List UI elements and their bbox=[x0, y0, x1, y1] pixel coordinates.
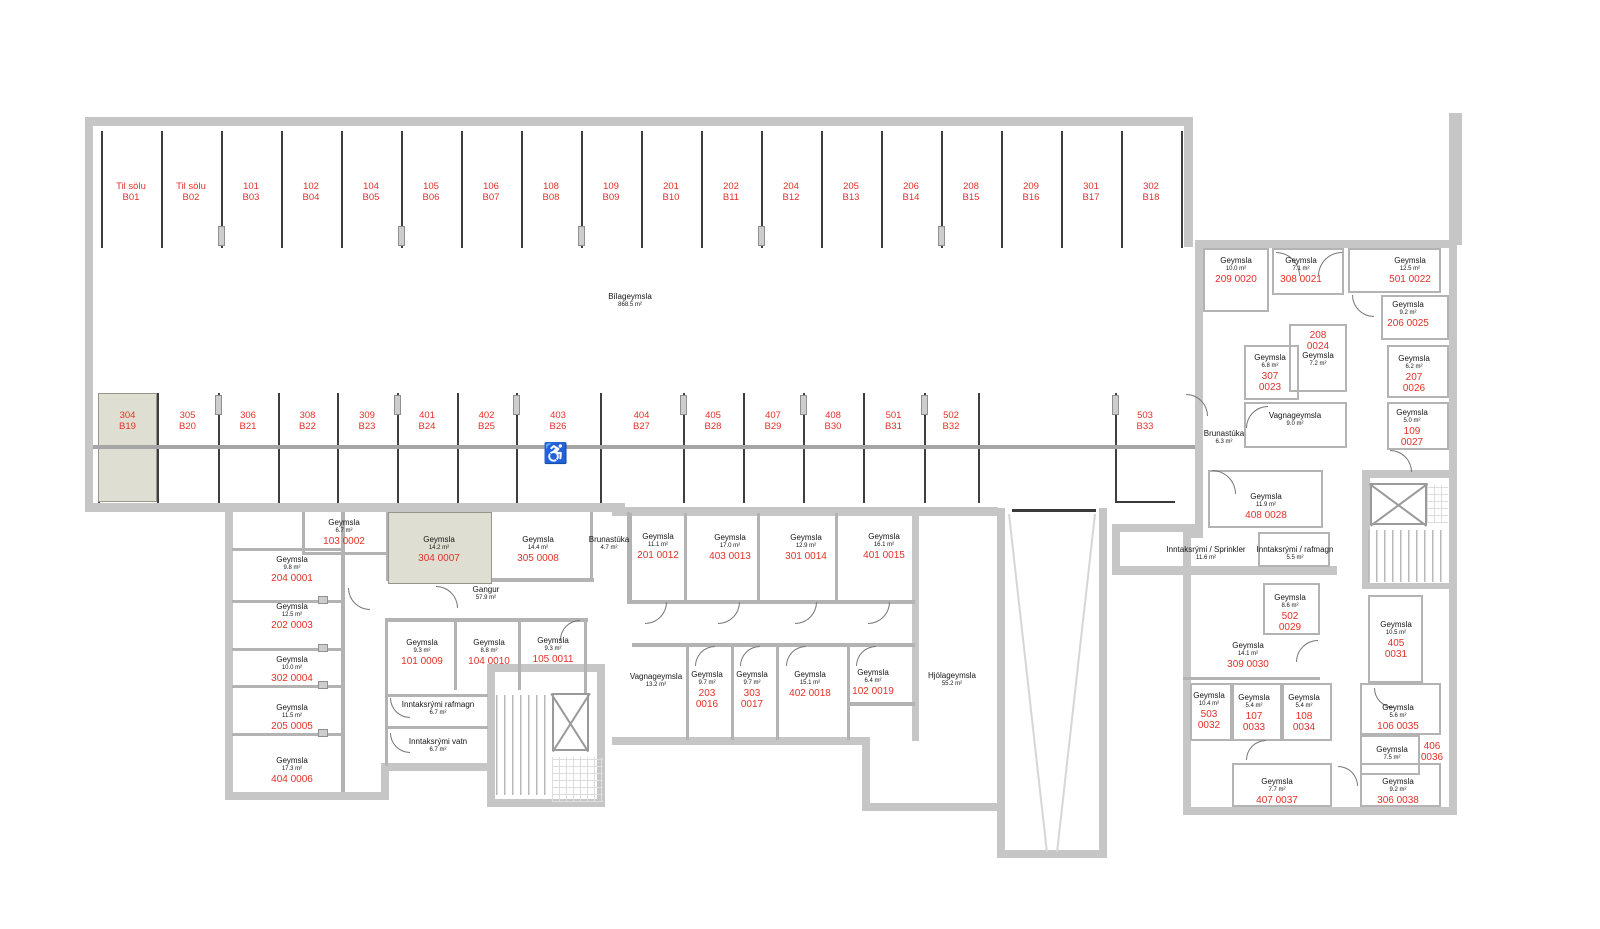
spot-number: 408 bbox=[825, 410, 841, 421]
room-name: Geymsla bbox=[1352, 409, 1472, 418]
wall bbox=[85, 117, 93, 512]
spot-number: 201 bbox=[663, 181, 679, 192]
unit-number: 0031 bbox=[1336, 649, 1456, 660]
partition-wall bbox=[388, 726, 488, 729]
spot-id: B08 bbox=[543, 192, 560, 203]
landing-tiles bbox=[552, 757, 603, 802]
wall bbox=[612, 507, 998, 516]
unit-number: 308 0021 bbox=[1241, 274, 1361, 285]
room-area: 9.2 m² bbox=[1338, 787, 1458, 793]
spot-number: 407 bbox=[765, 410, 781, 421]
spot-id: B31 bbox=[885, 421, 902, 432]
wall bbox=[85, 503, 625, 512]
parking-spot-label: 404B27 bbox=[606, 411, 678, 433]
room-name: Geymsla bbox=[1206, 493, 1326, 502]
room-name: Geymsla bbox=[1338, 778, 1458, 787]
room-area: 14.1 m² bbox=[1188, 651, 1308, 657]
room-name: Geymsla bbox=[1350, 257, 1470, 266]
spot-id: B23 bbox=[359, 421, 376, 432]
spot-id: B24 bbox=[419, 421, 436, 432]
spot-number: 401 bbox=[419, 410, 435, 421]
room-vagnageymsla: Vagnageymsla9.0 m² bbox=[1235, 412, 1355, 429]
spot-number: 309 bbox=[359, 410, 375, 421]
wall bbox=[381, 763, 389, 800]
spot-id: B18 bbox=[1143, 192, 1160, 203]
room-name: Geymsla bbox=[493, 637, 613, 646]
door-arc bbox=[740, 646, 760, 666]
room-area: 9.3 m² bbox=[493, 646, 613, 652]
room-inntaksr-mi-rafmagn: Inntaksrými rafmagn6.7 m² bbox=[378, 701, 498, 718]
spot-number: 106 bbox=[483, 181, 499, 192]
drive-aisle-line bbox=[93, 445, 1195, 449]
unit-number: 302 0004 bbox=[232, 673, 352, 684]
room-area: 9.0 m² bbox=[1235, 421, 1355, 427]
room-206-0025[interactable]: Geymsla9.2 m²206 0025 bbox=[1348, 301, 1468, 329]
wall bbox=[381, 763, 491, 771]
partition-wall bbox=[1183, 677, 1320, 680]
room-area: 5.5 m² bbox=[1235, 555, 1355, 561]
room-area: 55.2 m² bbox=[892, 681, 1012, 687]
garage-label: Bílageymsla868.5 m² bbox=[570, 293, 690, 310]
room-105-0011[interactable]: Geymsla9.3 m²105 0011 bbox=[493, 637, 613, 665]
room-area: 6.3 m² bbox=[1164, 439, 1284, 445]
spot-id: B14 bbox=[903, 192, 920, 203]
spot-number: Til sölu bbox=[116, 181, 146, 192]
stairs bbox=[1368, 530, 1448, 582]
room-name: Geymsla bbox=[232, 556, 352, 565]
room-area: 5.6 m² bbox=[1338, 713, 1458, 719]
wall bbox=[487, 664, 495, 807]
partition-wall bbox=[388, 694, 488, 697]
spot-id: B20 bbox=[179, 421, 196, 432]
room-307-0023[interactable]: Geymsla6.8 m²3070023 bbox=[1210, 354, 1330, 393]
room-brunast-ka: Brunastúka6.3 m² bbox=[1164, 430, 1284, 447]
unit-number: 306 0038 bbox=[1338, 795, 1458, 806]
room-405-0031[interactable]: Geymsla10.5 m²4050031 bbox=[1336, 621, 1456, 660]
spot-id: B17 bbox=[1083, 192, 1100, 203]
unit-number: 408 0028 bbox=[1206, 510, 1326, 521]
door-jamb bbox=[318, 644, 328, 652]
room-name: Geymsla bbox=[1217, 778, 1337, 787]
room-501-0022[interactable]: Geymsla12.5 m²501 0022 bbox=[1350, 257, 1470, 285]
spot-id: B10 bbox=[663, 192, 680, 203]
room-area: 11.9 m² bbox=[1206, 502, 1326, 508]
wall bbox=[1112, 566, 1337, 575]
room-106-0035[interactable]: Geymsla5.6 m²106 0035 bbox=[1338, 704, 1458, 732]
room-area: 7.1 m² bbox=[1241, 266, 1361, 272]
wall bbox=[862, 737, 870, 811]
room-name: Geymsla bbox=[232, 603, 352, 612]
ramp-edge bbox=[1057, 514, 1096, 852]
landing-tiles bbox=[1427, 485, 1448, 523]
room-205-0005[interactable]: Geymsla11.5 m²205 0005 bbox=[232, 704, 352, 732]
room-hj-lageymsla: Hjólageymsla55.2 m² bbox=[892, 672, 1012, 689]
unit-number: 406 bbox=[1392, 741, 1472, 752]
spot-number: 104 bbox=[363, 181, 379, 192]
unit-number: 307 bbox=[1210, 371, 1330, 382]
room-name: Geymsla bbox=[824, 533, 944, 542]
spot-number: 209 bbox=[1023, 181, 1039, 192]
room-area: 12.5 m² bbox=[1350, 266, 1470, 272]
door-arc bbox=[695, 646, 715, 666]
room-name: Gangur bbox=[426, 586, 546, 595]
spot-id: B01 bbox=[123, 192, 140, 203]
room-name: Geymsla bbox=[1354, 355, 1474, 364]
stairs bbox=[496, 695, 546, 795]
spot-number: 308 bbox=[300, 410, 316, 421]
spot-number: 204 bbox=[783, 181, 799, 192]
spot-id: B25 bbox=[478, 421, 495, 432]
wall bbox=[225, 792, 389, 800]
room-306-0038[interactable]: Geymsla9.2 m²306 0038 bbox=[1338, 778, 1458, 806]
wall bbox=[1195, 240, 1457, 248]
room-name: Inntaksrými rafmagn bbox=[378, 701, 498, 710]
room-gangur: Gangur57.9 m² bbox=[426, 586, 546, 603]
spot-id: B12 bbox=[783, 192, 800, 203]
room-407-0037[interactable]: Geymsla7.7 m²407 0037 bbox=[1217, 778, 1337, 806]
room-name: Hjólageymsla bbox=[892, 672, 1012, 681]
ramp-top-line bbox=[1012, 509, 1096, 512]
door-arc bbox=[1186, 394, 1208, 416]
room-name: Inntaksrými vatn bbox=[378, 738, 498, 747]
spot-id: B05 bbox=[363, 192, 380, 203]
spot-number: 101 bbox=[243, 181, 259, 192]
unit-number: 109 bbox=[1352, 426, 1472, 437]
spot-id: B04 bbox=[303, 192, 320, 203]
parking-spot-label: 502B32 bbox=[915, 411, 987, 433]
spot-number: 304 bbox=[120, 410, 136, 421]
unit-number: 202 0003 bbox=[232, 620, 352, 631]
room-area: 57.9 m² bbox=[426, 595, 546, 601]
room-309-0030[interactable]: Geymsla14.1 m²309 0030 bbox=[1188, 642, 1308, 670]
unit-number: 206 0025 bbox=[1348, 318, 1468, 329]
spot-id: B32 bbox=[943, 421, 960, 432]
room-401-0015[interactable]: Geymsla16.1 m²401 0015 bbox=[824, 533, 944, 561]
spot-id: B30 bbox=[825, 421, 842, 432]
spot-id: B07 bbox=[483, 192, 500, 203]
unit-number: 0023 bbox=[1210, 382, 1330, 393]
room-name: Inntaksrými / rafmagn bbox=[1235, 546, 1355, 555]
spot-number: 402 bbox=[479, 410, 495, 421]
ramp-edge bbox=[1009, 514, 1048, 852]
unit-number: 404 0006 bbox=[232, 774, 352, 785]
spot-id: B22 bbox=[299, 421, 316, 432]
room-308-0021[interactable]: Geymsla7.1 m²308 0021 bbox=[1241, 257, 1361, 285]
spot-number: 305 bbox=[180, 410, 196, 421]
room-area: 17.3 m² bbox=[232, 766, 352, 772]
door-arc bbox=[786, 646, 806, 666]
unit-number: 0036 bbox=[1392, 752, 1472, 763]
spot-id: B06 bbox=[423, 192, 440, 203]
spot-number: 206 bbox=[903, 181, 919, 192]
unit-number: 405 bbox=[1336, 638, 1456, 649]
room-109-0027[interactable]: Geymsla5.0 m²1090027 bbox=[1352, 409, 1472, 448]
unit-number: 205 0005 bbox=[232, 721, 352, 732]
unit-number: 105 0011 bbox=[493, 654, 613, 665]
room-name: Geymsla bbox=[232, 757, 352, 766]
spot-id: B09 bbox=[603, 192, 620, 203]
room-name: Geymsla bbox=[1230, 594, 1350, 603]
unit-number: 501 0022 bbox=[1350, 274, 1470, 285]
door-arc bbox=[795, 602, 817, 624]
wall bbox=[868, 803, 1005, 811]
room-207-0026[interactable]: Geymsla6.2 m²2070026 bbox=[1354, 355, 1474, 394]
wall bbox=[1362, 583, 1450, 589]
room-name: Geymsla bbox=[1188, 642, 1308, 651]
room-204-0001[interactable]: Geymsla9.8 m²204 0001 bbox=[232, 556, 352, 584]
parking-spot-label: 403B26 bbox=[522, 411, 594, 433]
unit-number: 401 0015 bbox=[824, 550, 944, 561]
unit-number: 204 0001 bbox=[232, 573, 352, 584]
room-502-0029[interactable]: Geymsla8.6 m²5020029 bbox=[1230, 594, 1350, 633]
spot-number: 302 bbox=[1143, 181, 1159, 192]
spot-number: 108 bbox=[543, 181, 559, 192]
wheelchair-icon: ♿ bbox=[543, 441, 568, 466]
spot-number: 208 bbox=[963, 181, 979, 192]
unit-number: 0029 bbox=[1230, 622, 1350, 633]
spot-id: B26 bbox=[550, 421, 567, 432]
wall bbox=[85, 117, 1192, 126]
spot-id: B27 bbox=[633, 421, 650, 432]
wall bbox=[1449, 113, 1462, 245]
wall bbox=[1099, 508, 1107, 858]
parking-spot-label: 302B18 bbox=[1115, 182, 1187, 204]
partition-wall bbox=[386, 618, 588, 622]
room-area: 10.0 m² bbox=[232, 665, 352, 671]
room-408-0028[interactable]: Geymsla11.9 m²408 0028 bbox=[1206, 493, 1326, 521]
room-name: Vagnageymsla bbox=[1235, 412, 1355, 421]
spot-number: 501 bbox=[886, 410, 902, 421]
spot-id: B33 bbox=[1137, 421, 1154, 432]
unit-number: 106 0035 bbox=[1338, 721, 1458, 732]
spot-number: 306 bbox=[240, 410, 256, 421]
room-area: 16.1 m² bbox=[824, 542, 944, 548]
spot-id: B13 bbox=[843, 192, 860, 203]
room-404-0006[interactable]: Geymsla17.3 m²404 0006 bbox=[232, 757, 352, 785]
parking-spot-label: 402B25 bbox=[451, 411, 523, 433]
door-arc bbox=[1390, 450, 1412, 472]
spot-number: 102 bbox=[303, 181, 319, 192]
door-arc bbox=[856, 646, 876, 666]
spot-id: B11 bbox=[723, 192, 739, 203]
spot-id: B29 bbox=[765, 421, 782, 432]
room-name: Brunastúka bbox=[1164, 430, 1284, 439]
spot-number: 109 bbox=[603, 181, 619, 192]
unit-number: 0017 bbox=[692, 699, 812, 710]
spot-id: B03 bbox=[243, 192, 260, 203]
room-202-0003[interactable]: Geymsla12.5 m²202 0003 bbox=[232, 603, 352, 631]
room-name: Geymsla bbox=[1348, 301, 1468, 310]
spot-number: 404 bbox=[634, 410, 650, 421]
room-area: 6.7 m² bbox=[378, 710, 498, 716]
partition-wall bbox=[850, 702, 915, 706]
spot-id: B16 bbox=[1023, 192, 1040, 203]
spot-number: 503 bbox=[1137, 410, 1153, 421]
room-name: Geymsla bbox=[284, 519, 404, 528]
unit-number: 208 bbox=[1258, 330, 1378, 341]
spot-id: B02 bbox=[183, 192, 200, 203]
wall bbox=[612, 737, 870, 745]
door-arc bbox=[1246, 740, 1266, 760]
room-area: 12.5 m² bbox=[232, 612, 352, 618]
room-area: 6.7 m² bbox=[284, 528, 404, 534]
partition-wall bbox=[232, 548, 344, 551]
room-name: Geymsla bbox=[1338, 704, 1458, 713]
room-inntaksr-mi-rafmagn: Inntaksrými / rafmagn5.5 m² bbox=[1235, 546, 1355, 563]
garage-name: Bílageymsla bbox=[570, 293, 690, 302]
unit-number: 305 0008 bbox=[478, 553, 598, 564]
partition-wall bbox=[302, 552, 390, 555]
spot-number: 105 bbox=[423, 181, 439, 192]
room-area: 7.7 m² bbox=[1217, 787, 1337, 793]
room-name: Geymsla bbox=[232, 704, 352, 713]
unit-number: 0027 bbox=[1352, 437, 1472, 448]
room-unit-406-0036[interactable]: 4060036 bbox=[1392, 741, 1472, 763]
room-302-0004[interactable]: Geymsla10.0 m²302 0004 bbox=[232, 656, 352, 684]
room-area: 9.2 m² bbox=[1348, 310, 1468, 316]
room-area: 6.7 m² bbox=[378, 747, 498, 753]
spot-id: B19 bbox=[119, 421, 136, 432]
room-area: 9.8 m² bbox=[232, 565, 352, 571]
room-name: Geymsla bbox=[1210, 354, 1330, 363]
spot-number: 202 bbox=[723, 181, 739, 192]
spot-number: 405 bbox=[705, 410, 721, 421]
room-name: Geymsla bbox=[1241, 257, 1361, 266]
unit-number: 0026 bbox=[1354, 383, 1474, 394]
room-area: 10.5 m² bbox=[1336, 630, 1456, 636]
room-name: Geymsla bbox=[1336, 621, 1456, 630]
spot-number: Til sölu bbox=[176, 181, 206, 192]
unit-number: 309 0030 bbox=[1188, 659, 1308, 670]
unit-number: 207 bbox=[1354, 372, 1474, 383]
garage-area: 868.5 m² bbox=[570, 302, 690, 308]
room-name: Geymsla bbox=[232, 656, 352, 665]
room-area: 6.8 m² bbox=[1210, 363, 1330, 369]
door-arc bbox=[718, 602, 740, 624]
wall bbox=[1112, 524, 1203, 532]
wall bbox=[1183, 807, 1457, 815]
unit-number: 502 bbox=[1230, 611, 1350, 622]
unit-number: 407 0037 bbox=[1217, 795, 1337, 806]
room-area: 8.6 m² bbox=[1230, 603, 1350, 609]
room-area: 6.2 m² bbox=[1354, 364, 1474, 370]
room-area: 11.5 m² bbox=[232, 713, 352, 719]
room-name: Geymsla bbox=[1244, 694, 1364, 703]
wall bbox=[997, 850, 1107, 858]
door-arc bbox=[868, 602, 890, 624]
spot-id: B28 bbox=[705, 421, 722, 432]
floor-plan: Til söluB01Til söluB02101B03102B04104B05… bbox=[0, 0, 1600, 929]
spot-number: 502 bbox=[943, 410, 959, 421]
room-area: 5.0 m² bbox=[1352, 418, 1472, 424]
spot-number: 301 bbox=[1083, 181, 1099, 192]
spot-number: 205 bbox=[843, 181, 859, 192]
spot-id: B15 bbox=[963, 192, 980, 203]
spot-id: B21 bbox=[240, 421, 257, 432]
room-inntaksr-mi-vatn: Inntaksrými vatn6.7 m² bbox=[378, 738, 498, 755]
spot-number: 403 bbox=[550, 410, 566, 421]
door-arc bbox=[645, 602, 667, 624]
